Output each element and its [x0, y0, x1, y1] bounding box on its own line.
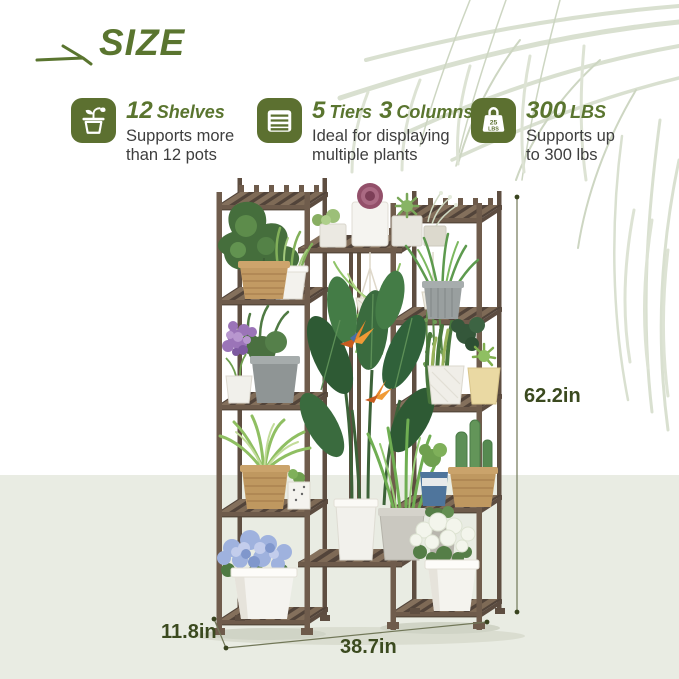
- feature-text: 5Tiers3Columns Ideal for displaying mult…: [312, 98, 480, 164]
- depth-dimension-label: 11.8in: [161, 621, 217, 644]
- feature-text: 12Shelves Supports more than 12 pots: [126, 98, 234, 164]
- size-arrow-icon: [35, 40, 95, 66]
- weight-icon-label-bottom: LBS: [488, 126, 499, 132]
- potted-plant-icon: [71, 98, 116, 143]
- feature-description: Ideal for displaying multiple plants: [312, 127, 480, 164]
- width-dimension-label: 38.7in: [340, 636, 397, 659]
- feature-tiers-columns: 5Tiers3Columns Ideal for displaying mult…: [257, 98, 480, 164]
- feature-description: Supports more than 12 pots: [126, 127, 234, 164]
- plant-hydrangea: [217, 530, 297, 619]
- plant-cacti: [419, 420, 498, 507]
- plants-succulents-top: [312, 183, 458, 247]
- feature-text: 300LBS Supports up to 300 lbs: [526, 98, 615, 164]
- plant-snake-succulent: [427, 317, 500, 404]
- feature-title: 300LBS: [526, 98, 615, 123]
- weight-icon: 25 LBS: [471, 98, 516, 143]
- plant-purple-flowers: [222, 306, 300, 403]
- feature-shelves: 12Shelves Supports more than 12 pots: [71, 98, 234, 164]
- infographic-canvas: SIZE 12Shelves Supports more than 12 pot…: [0, 0, 679, 679]
- feature-description: Supports up to 300 lbs: [526, 127, 615, 164]
- page-title: SIZE: [99, 22, 185, 64]
- feature-weight-capacity: 25 LBS 300LBS Supports up to 300 lbs: [471, 98, 615, 164]
- height-dimension-label: 62.2in: [524, 385, 581, 408]
- plant-white-flowers: [410, 513, 479, 611]
- plant-areca-palm: [406, 234, 478, 319]
- plant-spider-striped: [220, 416, 310, 509]
- plant-monstera-fern: [218, 202, 312, 299]
- feature-title: 5Tiers3Columns: [312, 98, 480, 123]
- shelf-tiers-icon: [257, 98, 302, 143]
- feature-title: 12Shelves: [126, 98, 234, 123]
